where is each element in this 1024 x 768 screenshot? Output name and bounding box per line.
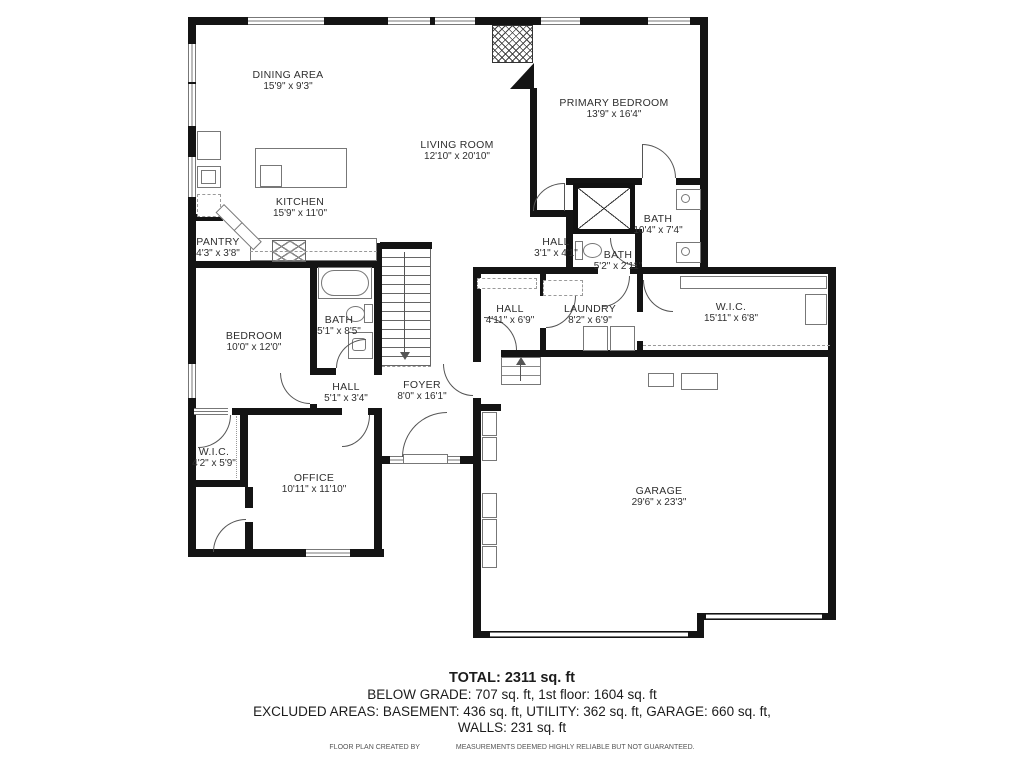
staircase: [382, 249, 431, 366]
sidelight-window: [390, 456, 403, 464]
room-label-hall51: HALL5'1" x 3'4": [324, 381, 368, 405]
room-label-wic-large: W.I.C.15'11" x 6'8": [704, 301, 758, 325]
window: [188, 84, 196, 126]
room-label-foyer: FOYER8'0" x 16'1": [397, 379, 446, 403]
wall-wic-bottom: [188, 480, 248, 487]
wall-bath-bottom: [310, 368, 336, 375]
sink-basin: [681, 194, 690, 203]
door-arc-bedroom: [280, 373, 310, 404]
wall-front-b: [460, 456, 473, 464]
wall-wic-top: [700, 267, 836, 274]
wic-shelf-right: [805, 294, 827, 325]
door-arc-bath51: [336, 339, 366, 368]
refrigerator: [197, 131, 221, 160]
counter-dash-line: [250, 251, 377, 252]
bathtub-inner: [321, 270, 369, 296]
sink-basin: [681, 247, 690, 256]
wall-right-primary: [700, 17, 708, 274]
wic-shelf: [680, 276, 827, 289]
hall-closet-shelf: [477, 278, 537, 289]
room-label-garage: GARAGE29'6" x 23'3": [632, 485, 687, 509]
garage-door: [706, 614, 822, 619]
excluded-areas-line: EXCLUDED AREAS: BASEMENT: 436 sq. ft, UT…: [0, 704, 1024, 721]
window: [188, 157, 196, 197]
window: [188, 364, 196, 398]
room-label-bath51: BATH5'1" x 8'5": [317, 314, 361, 338]
room-label-dining: DINING AREA15'9" x 9'3": [253, 69, 324, 93]
wall-hall-laundry-wic-bottom: [501, 350, 836, 357]
opening-hall-foyer: [374, 375, 382, 408]
room-label-pantry: PANTRY4'3" x 3'8": [196, 236, 240, 260]
floor-plan-page: DINING AREA15'9" x 9'3" LIVING ROOM12'10…: [0, 0, 1024, 768]
wall-garage-left: [473, 267, 481, 638]
wall-hall-bottom-stub: [368, 408, 382, 415]
kitchen-island-seat: [260, 165, 282, 187]
room-label-primary-bath: BATH10'4" x 7'4": [633, 213, 682, 237]
washer: [583, 326, 608, 351]
door-arc-primary-bedroom: [642, 144, 676, 178]
room-label-primary-bedroom: PRIMARY BEDROOM13'9" x 16'4": [559, 97, 668, 121]
window: [541, 17, 580, 25]
door-arc-hall3: [533, 183, 564, 211]
door-arc-office: [342, 415, 370, 447]
window: [306, 549, 350, 557]
opening-closet-door: [245, 508, 253, 522]
walls-line: WALLS: 231 sq. ft: [0, 720, 1024, 737]
room-label-small-bath: BATH5'2" x 2'11": [594, 249, 643, 273]
wall-wic-office-divider: [240, 415, 248, 487]
credits-row: FLOOR PLAN CREATED BY MEASUREMENTS DEEME…: [0, 744, 1024, 751]
fireplace-hatch: [492, 25, 533, 63]
wall-right-outer: [828, 267, 836, 620]
area-summary: TOTAL: 2311 sq. ft BELOW GRADE: 707 sq. …: [0, 670, 1024, 737]
wall-mudroom-stub: [473, 404, 501, 411]
entry-arrow-head: [516, 357, 526, 365]
stair-direction-arrow: [400, 352, 410, 360]
opening-bedroom-door: [310, 372, 317, 404]
below-grade-line: BELOW GRADE: 707 sq. ft, 1st floor: 1604…: [0, 687, 1024, 704]
wall-hall3-top: [530, 210, 566, 217]
wall-stairs-top: [380, 242, 432, 249]
window: [188, 44, 196, 82]
shower: [573, 183, 635, 234]
window: [435, 17, 475, 25]
wall-hall-bottom: [232, 408, 342, 415]
window: [648, 17, 690, 25]
wic-rod-dash: [643, 345, 830, 346]
window: [388, 17, 430, 25]
window: [194, 408, 228, 415]
room-label-living: LIVING ROOM12'10" x 20'10": [420, 139, 493, 163]
room-label-hall3: HALL3'1" x 4'1": [534, 236, 578, 260]
door-arc-mudroom: [443, 364, 473, 396]
opening-mudroom-door: [473, 362, 481, 398]
wall-primary-bottom-right: [676, 178, 708, 185]
room-label-office: OFFICE10'11" x 11'10": [282, 472, 346, 496]
room-label-wic-small: W.I.C.4'2" x 5'9": [192, 446, 236, 470]
garage-cabinet: [482, 493, 497, 518]
kitchen-counter: [250, 238, 377, 261]
garage-cabinet: [482, 519, 497, 545]
door-arc-wic: [643, 280, 673, 312]
laundry-cabinet: [543, 280, 583, 296]
toilet-tank: [364, 304, 373, 323]
kitchen-sink: [201, 170, 216, 184]
disclaimer-text: MEASUREMENTS DEEMED HIGHLY RELIABLE BUT …: [456, 744, 695, 751]
wall-row-bottom-left: [473, 267, 598, 274]
garage-door: [490, 632, 688, 637]
window: [248, 17, 324, 25]
wic-small-rod: [236, 416, 237, 478]
wall-front-a: [380, 456, 390, 464]
garage-cabinet: [482, 546, 497, 568]
room-label-laundry: LAUNDRY8'2" x 6'9": [564, 303, 616, 327]
fireplace-corner: [510, 63, 534, 89]
room-label-kitchen: KITCHEN15'9" x 11'0": [273, 196, 327, 220]
door-arc-front-door: [402, 412, 447, 457]
garage-cabinet: [482, 412, 497, 436]
floor-plan: DINING AREA15'9" x 9'3" LIVING ROOM12'10…: [0, 0, 1024, 768]
dryer: [610, 326, 635, 351]
wall-closet-right: [245, 487, 253, 557]
total-area: TOTAL: 2311 sq. ft: [0, 670, 1024, 687]
room-label-hall4: HALL4'11" x 6'9": [486, 303, 535, 327]
door-arc-closet: [213, 519, 246, 552]
garage-shelf: [648, 373, 674, 387]
stair-guide-line: [404, 252, 405, 352]
door-arc-wic-small: [198, 415, 231, 448]
stair-bottom-dash: [382, 366, 431, 367]
room-label-bedroom: BEDROOM10'0" x 12'0": [226, 330, 282, 354]
garage-cabinet: [482, 437, 497, 461]
created-by-text: FLOOR PLAN CREATED BY: [329, 744, 420, 751]
sidelight-window: [448, 456, 460, 464]
door-leaf: [564, 183, 565, 211]
door-leaf: [642, 145, 643, 178]
garage-shelf: [681, 373, 718, 390]
